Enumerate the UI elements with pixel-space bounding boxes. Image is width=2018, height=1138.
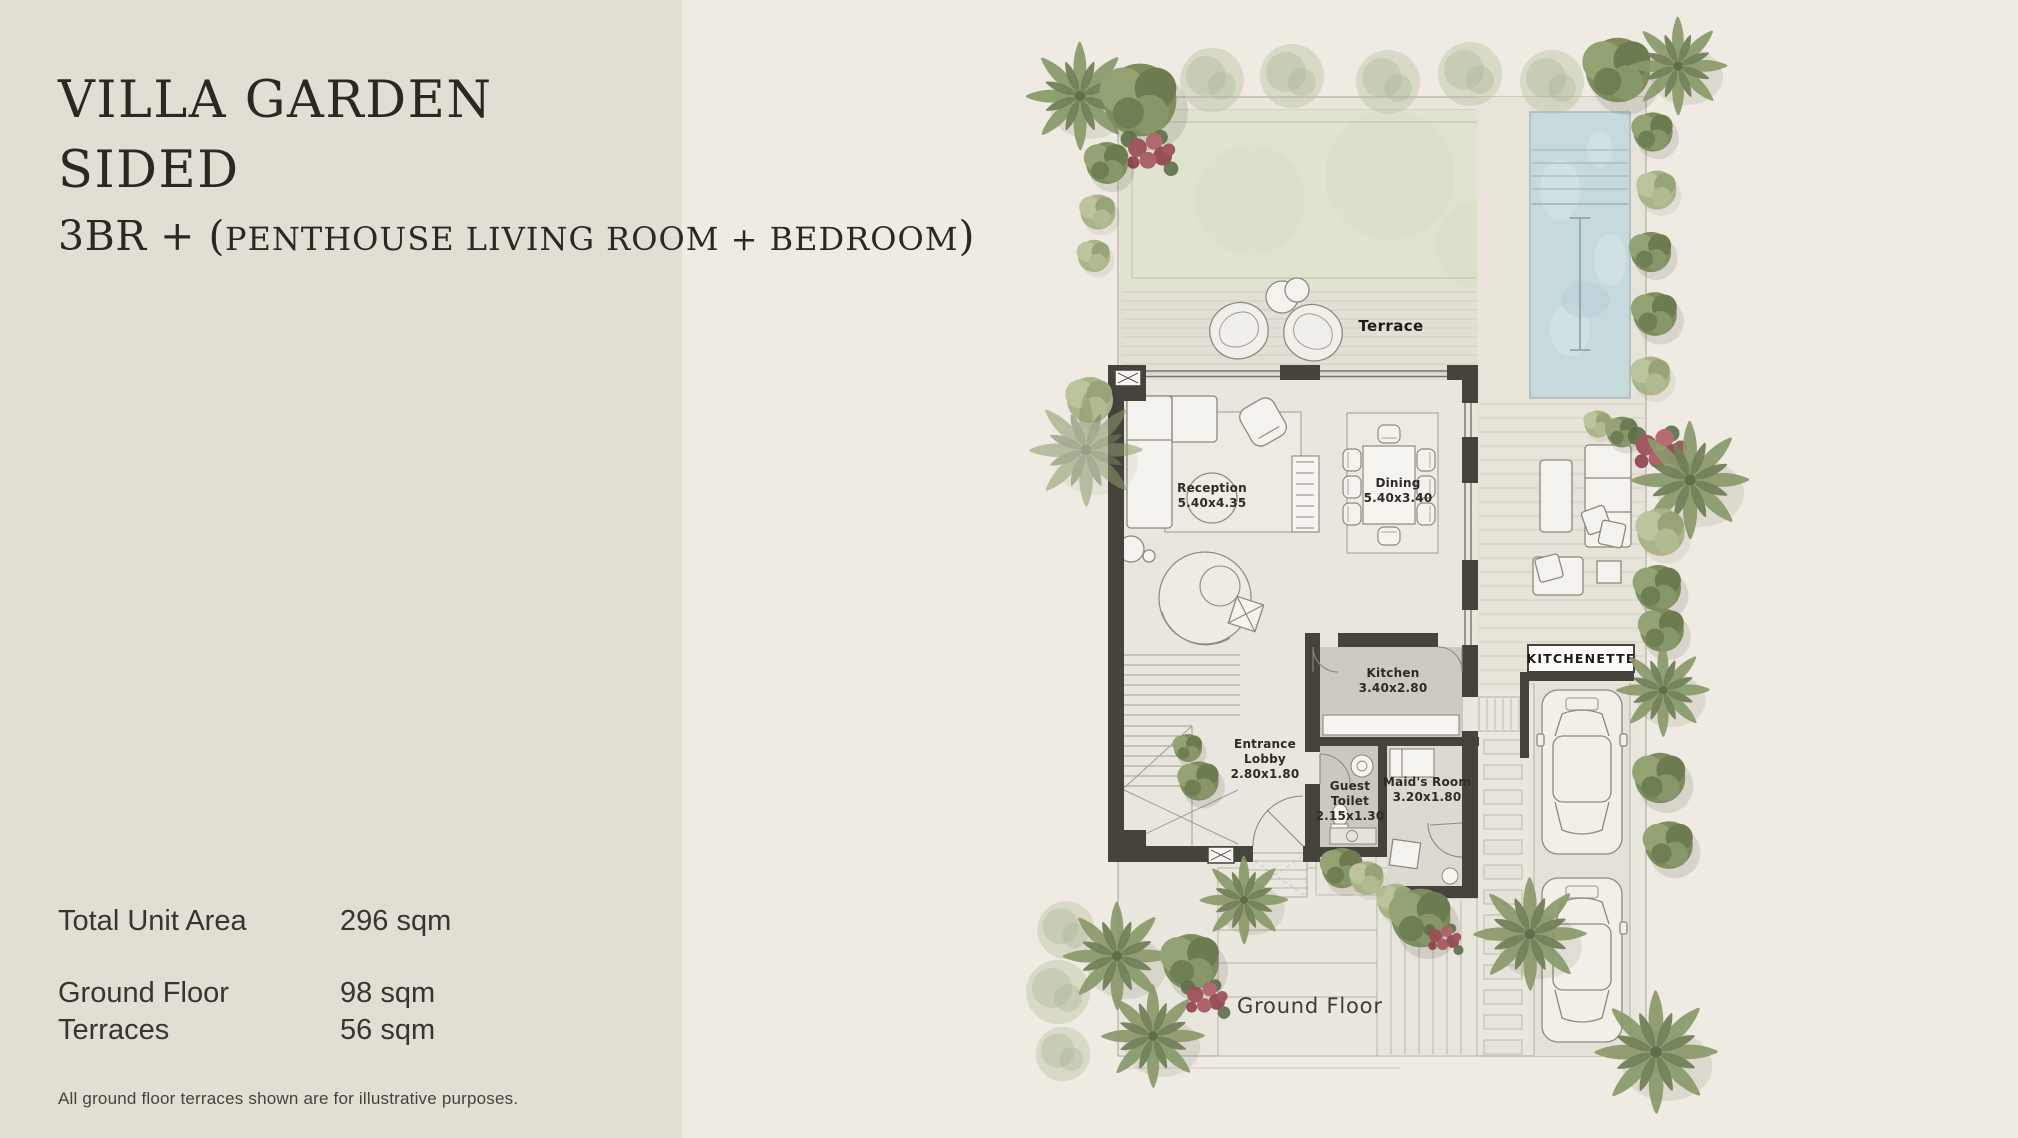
stat-label: Terraces (58, 1014, 169, 1047)
page-title: VILLA GARDEN SIDED (58, 66, 492, 206)
disclaimer-note: All ground floor terraces shown are for … (58, 1089, 518, 1109)
title-line-1: VILLA GARDEN (58, 66, 492, 136)
entrance-lobby-label-1: Entrance (1234, 737, 1296, 751)
page: VILLA GARDEN SIDED 3BR + (PENTHOUSE LIVI… (0, 0, 2018, 1138)
entrance-lobby-label-2: Lobby (1244, 752, 1286, 766)
stat-label: Total Unit Area (58, 905, 247, 938)
maids-room-dims: 3.20x1.80 (1393, 790, 1462, 804)
window-marker-top (1115, 370, 1141, 386)
kitchen-label: Kitchen (1367, 666, 1420, 680)
kitchen-dims: 3.40x2.80 (1359, 681, 1428, 695)
reception-label: Reception (1177, 481, 1247, 495)
stat-ground-floor: Ground Floor 98 sqm (0, 977, 682, 1013)
car-1 (1537, 690, 1627, 854)
info-panel: VILLA GARDEN SIDED 3BR + (PENTHOUSE LIVI… (0, 0, 682, 1138)
ground-floor-label: Ground Floor (1237, 994, 1383, 1018)
reception-dims: 5.40x4.35 (1178, 496, 1247, 510)
guest-toilet-label-1: Guest (1330, 779, 1370, 793)
floor-plan: KITCHENETTE (682, 0, 2018, 1138)
stat-label: Ground Floor (58, 977, 229, 1010)
floor-plan-drawing: KITCHENETTE (682, 0, 2018, 1138)
dining-label: Dining (1375, 476, 1420, 490)
swimming-pool (1530, 112, 1630, 398)
entrance-lobby-dims: 2.80x1.80 (1231, 767, 1300, 781)
stat-value: 56 sqm (340, 1014, 435, 1047)
terrace-label: Terrace (1358, 317, 1423, 335)
kitchenette-label: KITCHENETTE (1526, 651, 1635, 666)
guest-toilet-label-2: Toilet (1331, 794, 1369, 808)
dining-dims: 5.40x3.40 (1364, 491, 1433, 505)
stat-terraces: Terraces 56 sqm (0, 1014, 682, 1050)
window-marker-bottom (1208, 847, 1234, 863)
stat-value: 98 sqm (340, 977, 435, 1010)
side-steps (1479, 697, 1523, 731)
subtitle-prefix: 3BR + ( (58, 212, 225, 260)
stat-total-unit-area: Total Unit Area 296 sqm (0, 905, 682, 941)
garden-lawn (1120, 110, 1535, 290)
stat-value: 296 sqm (340, 905, 451, 938)
maids-room-label: Maid's Room (1383, 775, 1471, 789)
title-line-2: SIDED (58, 136, 492, 206)
guest-toilet-dims: 2.15x1.30 (1316, 809, 1385, 823)
